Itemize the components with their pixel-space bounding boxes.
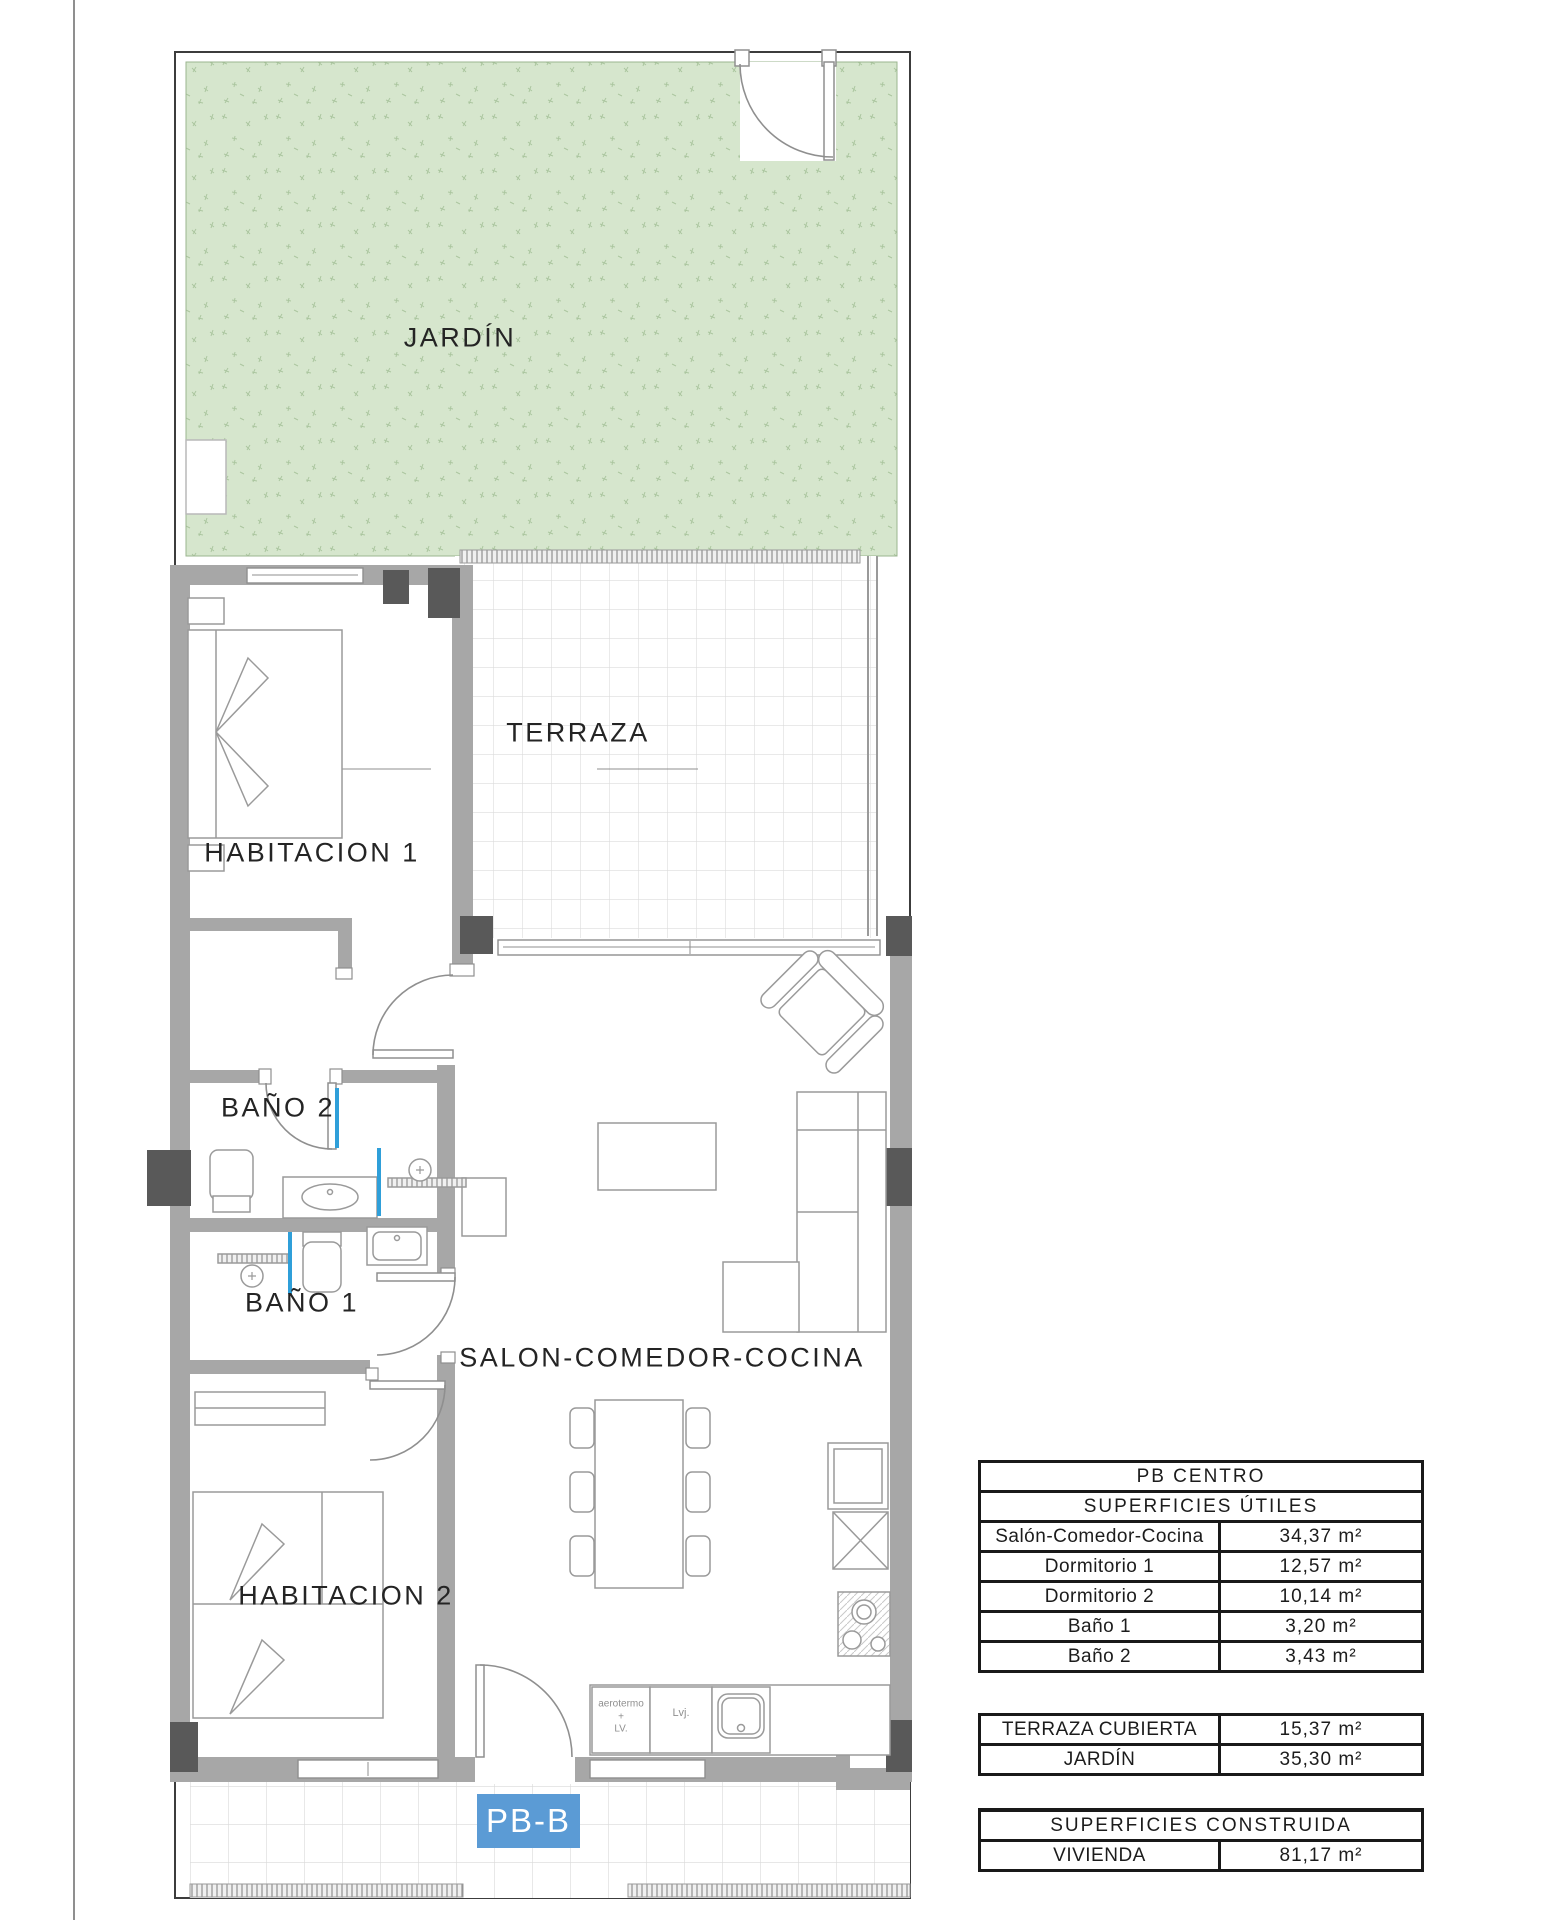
garden-area [186, 50, 897, 556]
entrance-opening [475, 1755, 575, 1784]
row-value: 3,43 m² [1221, 1643, 1421, 1670]
row-value: 34,37 m² [1221, 1523, 1421, 1550]
unit-badge: PB-B [477, 1794, 580, 1848]
living-label: SALON-COMEDOR-COCINA [459, 1343, 865, 1374]
table-title: SUPERFICIES CONSTRUIDA [981, 1812, 1421, 1839]
bath1-label: BAÑO 1 [245, 1288, 359, 1319]
row-value: 15,37 m² [1221, 1716, 1421, 1743]
bedroom2-furniture [193, 1392, 383, 1718]
useful-surfaces-table: PB CENTRO SUPERFICIES ÚTILES Salón-Comed… [978, 1460, 1424, 1673]
table-row: Salón-Comedor-Cocina 34,37 m² [981, 1520, 1421, 1550]
row-value: 12,57 m² [1221, 1553, 1421, 1580]
table-row: Baño 2 3,43 m² [981, 1640, 1421, 1670]
aerotermo-note: aerotermo + LV. [598, 1698, 644, 1736]
bath2-fixtures [210, 1150, 466, 1218]
row-value: 10,14 m² [1221, 1583, 1421, 1610]
terrace-edge-hatch [460, 550, 860, 563]
row-label: Baño 1 [981, 1613, 1221, 1640]
table-title: PB CENTRO [981, 1463, 1421, 1490]
dishwasher-note: Lvj. [672, 1707, 689, 1721]
exterior-surfaces-table: TERRAZA CUBIERTA 15,37 m² JARDÍN 35,30 m… [978, 1713, 1424, 1776]
table-row: Dormitorio 2 10,14 m² [981, 1580, 1421, 1610]
garden-label: JARDÍN [404, 323, 517, 354]
bath2-label: BAÑO 2 [221, 1093, 335, 1124]
row-label: Baño 2 [981, 1643, 1221, 1670]
row-label: Dormitorio 1 [981, 1553, 1221, 1580]
gate-post [735, 50, 749, 66]
bedroom1-label: HABITACION 1 [204, 838, 420, 869]
row-label: VIVIENDA [981, 1842, 1221, 1869]
table-subtitle: SUPERFICIES ÚTILES [981, 1490, 1421, 1520]
gate-door-leaf [824, 62, 834, 160]
row-label: TERRAZA CUBIERTA [981, 1716, 1221, 1743]
row-label: JARDÍN [981, 1746, 1221, 1773]
bath1-fixtures [218, 1227, 427, 1292]
table-row: TERRAZA CUBIERTA 15,37 m² [981, 1716, 1421, 1743]
floor-plan-sheet: JARDÍN TERRAZA HABITACION 1 BAÑO 2 BAÑO … [0, 0, 1564, 1920]
walkway-edge-hatch [190, 1884, 463, 1897]
row-value: 81,17 m² [1221, 1842, 1421, 1869]
row-value: 35,30 m² [1221, 1746, 1421, 1773]
built-surfaces-table: SUPERFICIES CONSTRUIDA VIVIENDA 81,17 m² [978, 1808, 1424, 1872]
table-row: VIVIENDA 81,17 m² [981, 1839, 1421, 1869]
row-label: Dormitorio 2 [981, 1583, 1221, 1610]
bedroom2-label: HABITACION 2 [238, 1581, 454, 1612]
row-value: 3,20 m² [1221, 1613, 1421, 1640]
walkway-edge-hatch [628, 1884, 910, 1897]
bedroom1-furniture [188, 598, 342, 871]
row-label: Salón-Comedor-Cocina [981, 1523, 1221, 1550]
table-row: Baño 1 3,20 m² [981, 1610, 1421, 1640]
terrace-label: TERRAZA [506, 718, 650, 749]
table-row: Dormitorio 1 12,57 m² [981, 1550, 1421, 1580]
table-row: JARDÍN 35,30 m² [981, 1743, 1421, 1773]
